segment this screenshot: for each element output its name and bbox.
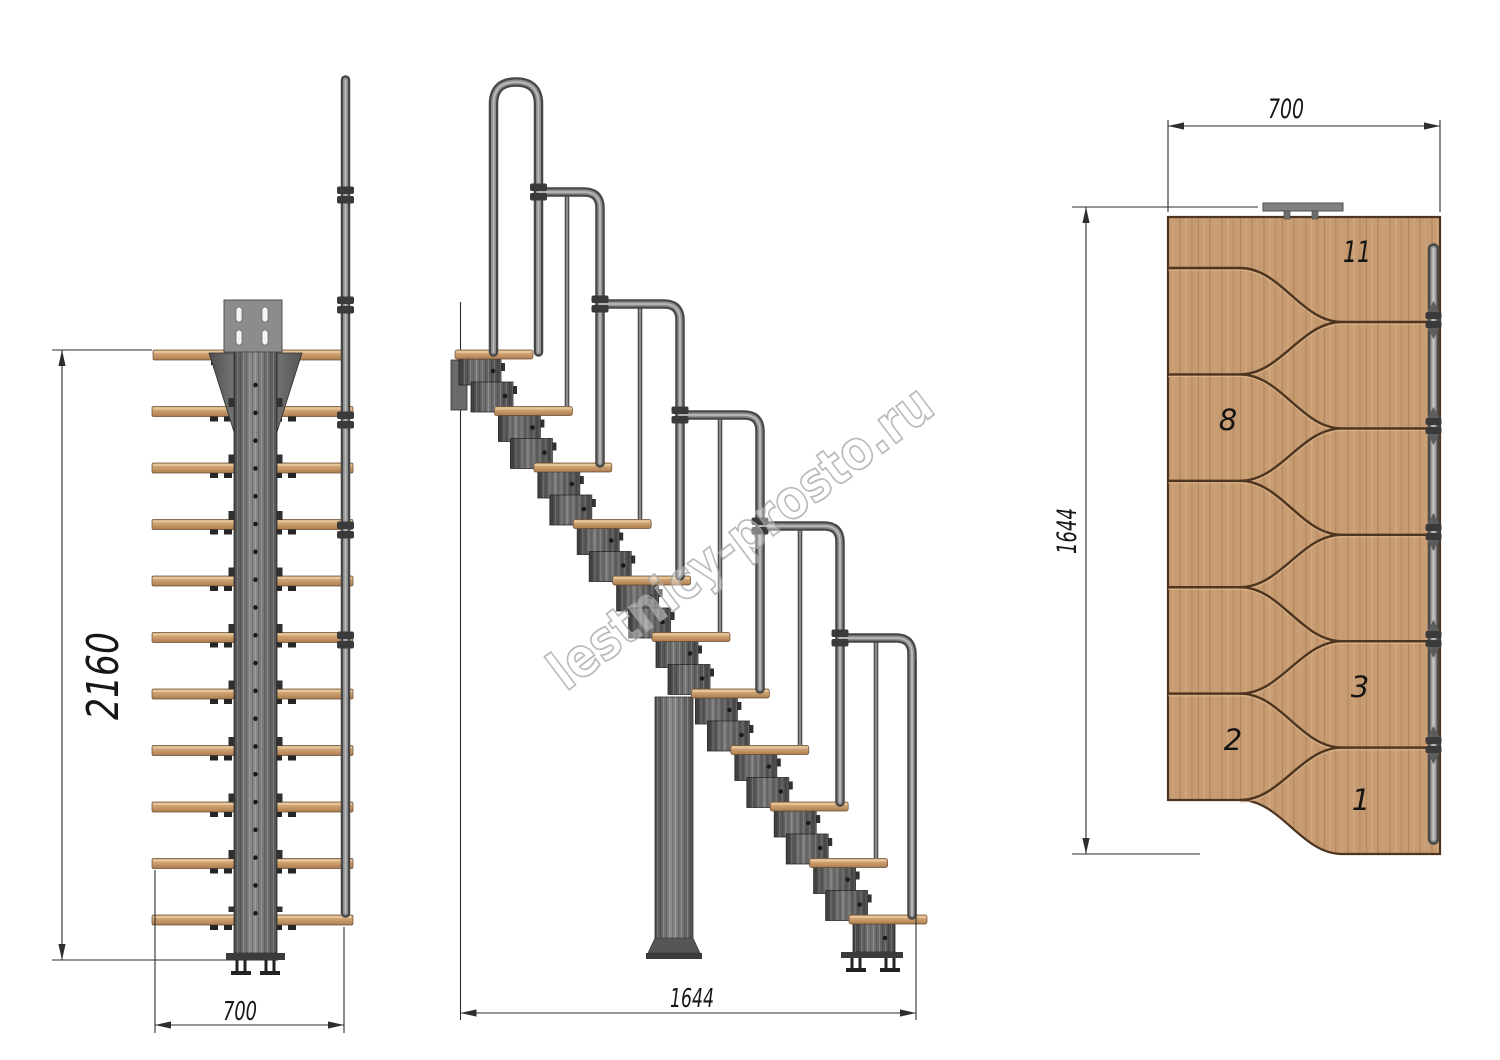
tread-number-3: 3	[1351, 670, 1369, 704]
front-view: 2160	[52, 80, 354, 1033]
plan-width-value: 700	[1268, 94, 1304, 125]
front-width-value: 700	[223, 997, 257, 1027]
front-base-plate	[226, 953, 285, 975]
plan-view: 11 8 3 2 1 700	[1052, 94, 1442, 854]
plan-width-dimension: 700	[1168, 94, 1440, 212]
plan-length-value: 1644	[1052, 508, 1083, 554]
drawing-canvas: 2160	[0, 0, 1500, 1060]
staircase-technical-drawing: 2160	[0, 0, 1500, 1060]
front-handrail-post	[337, 80, 354, 913]
side-tread-1	[841, 915, 927, 972]
side-support-column	[646, 697, 702, 959]
front-top-plate	[224, 300, 282, 352]
plan-handrail	[1426, 249, 1442, 839]
tread-number-2: 2	[1224, 723, 1242, 757]
side-length-value: 1644	[670, 984, 714, 1014]
tread-number-1: 1	[1352, 783, 1370, 817]
tread-number-8: 8	[1219, 403, 1237, 437]
front-height-value: 2160	[78, 632, 129, 720]
tread-number-11: 11	[1343, 235, 1371, 269]
